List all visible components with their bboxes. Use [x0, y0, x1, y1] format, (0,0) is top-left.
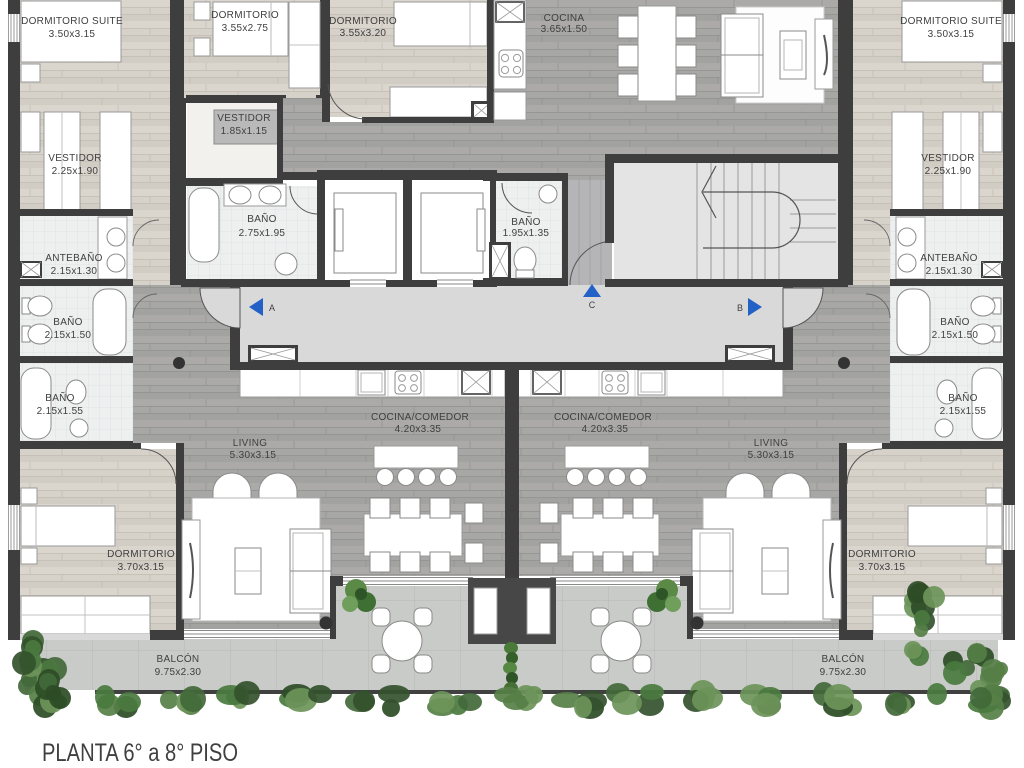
svg-text:3.55x3.20: 3.55x3.20: [340, 28, 387, 39]
svg-text:BAÑO: BAÑO: [45, 391, 75, 404]
svg-text:2.15x1.30: 2.15x1.30: [926, 266, 973, 277]
svg-text:9.75x2.30: 9.75x2.30: [820, 667, 867, 678]
svg-text:2.25x1.90: 2.25x1.90: [925, 166, 972, 177]
svg-text:LIVING: LIVING: [233, 438, 268, 449]
svg-text:VESTIDOR: VESTIDOR: [48, 153, 102, 164]
svg-text:COCINA/COMEDOR: COCINA/COMEDOR: [371, 412, 469, 423]
svg-text:BAÑO: BAÑO: [247, 212, 277, 225]
svg-text:5.30x3.15: 5.30x3.15: [230, 450, 277, 461]
svg-text:BALCÓN: BALCÓN: [822, 652, 865, 665]
svg-text:1.85x1.15: 1.85x1.15: [221, 126, 268, 137]
svg-text:BAÑO: BAÑO: [53, 315, 83, 328]
svg-text:2.25x1.90: 2.25x1.90: [52, 166, 99, 177]
svg-text:BAÑO: BAÑO: [511, 215, 541, 228]
svg-text:COCINA: COCINA: [544, 13, 585, 24]
svg-text:VESTIDOR: VESTIDOR: [217, 113, 271, 124]
svg-text:BALCÓN: BALCÓN: [157, 652, 200, 665]
svg-text:PLANTA 6° a 8° PISO: PLANTA 6° a 8° PISO: [42, 739, 238, 767]
svg-text:A: A: [269, 303, 275, 313]
svg-text:LIVING: LIVING: [754, 438, 789, 449]
svg-text:BAÑO: BAÑO: [948, 391, 978, 404]
svg-text:BAÑO: BAÑO: [940, 315, 970, 328]
svg-text:DORMITORIO SUITE: DORMITORIO SUITE: [21, 16, 123, 27]
svg-text:3.70x3.15: 3.70x3.15: [118, 562, 165, 573]
svg-text:DORMITORIO: DORMITORIO: [107, 549, 175, 560]
svg-text:VESTIDOR: VESTIDOR: [921, 153, 975, 164]
svg-text:ANTEBAÑO: ANTEBAÑO: [45, 251, 102, 264]
svg-text:3.50x3.15: 3.50x3.15: [49, 29, 96, 40]
svg-text:2.15x1.50: 2.15x1.50: [45, 330, 92, 341]
svg-text:B: B: [737, 303, 743, 313]
svg-text:2.15x1.55: 2.15x1.55: [940, 406, 987, 417]
svg-text:2.75x1.95: 2.75x1.95: [239, 228, 286, 239]
svg-text:C: C: [589, 300, 596, 310]
svg-text:1.95x1.35: 1.95x1.35: [503, 228, 550, 239]
svg-text:2.15x1.50: 2.15x1.50: [932, 330, 979, 341]
svg-text:COCINA/COMEDOR: COCINA/COMEDOR: [554, 412, 652, 423]
svg-text:5.30x3.15: 5.30x3.15: [748, 450, 795, 461]
svg-text:4.20x3.35: 4.20x3.35: [395, 424, 442, 435]
svg-text:DORMITORIO: DORMITORIO: [848, 549, 916, 560]
svg-text:9.75x2.30: 9.75x2.30: [155, 667, 202, 678]
svg-text:ANTEBAÑO: ANTEBAÑO: [920, 251, 977, 264]
svg-text:3.50x3.15: 3.50x3.15: [928, 29, 975, 40]
svg-text:3.65x1.50: 3.65x1.50: [541, 24, 588, 35]
svg-text:DORMITORIO: DORMITORIO: [211, 10, 279, 21]
svg-text:2.15x1.30: 2.15x1.30: [51, 266, 98, 277]
svg-text:2.15x1.55: 2.15x1.55: [37, 406, 84, 417]
svg-text:4.20x3.35: 4.20x3.35: [582, 424, 629, 435]
svg-text:DORMITORIO: DORMITORIO: [329, 16, 397, 27]
svg-text:3.55x2.75: 3.55x2.75: [222, 23, 269, 34]
svg-text:3.70x3.15: 3.70x3.15: [859, 562, 906, 573]
svg-text:DORMITORIO SUITE: DORMITORIO SUITE: [900, 16, 1002, 27]
